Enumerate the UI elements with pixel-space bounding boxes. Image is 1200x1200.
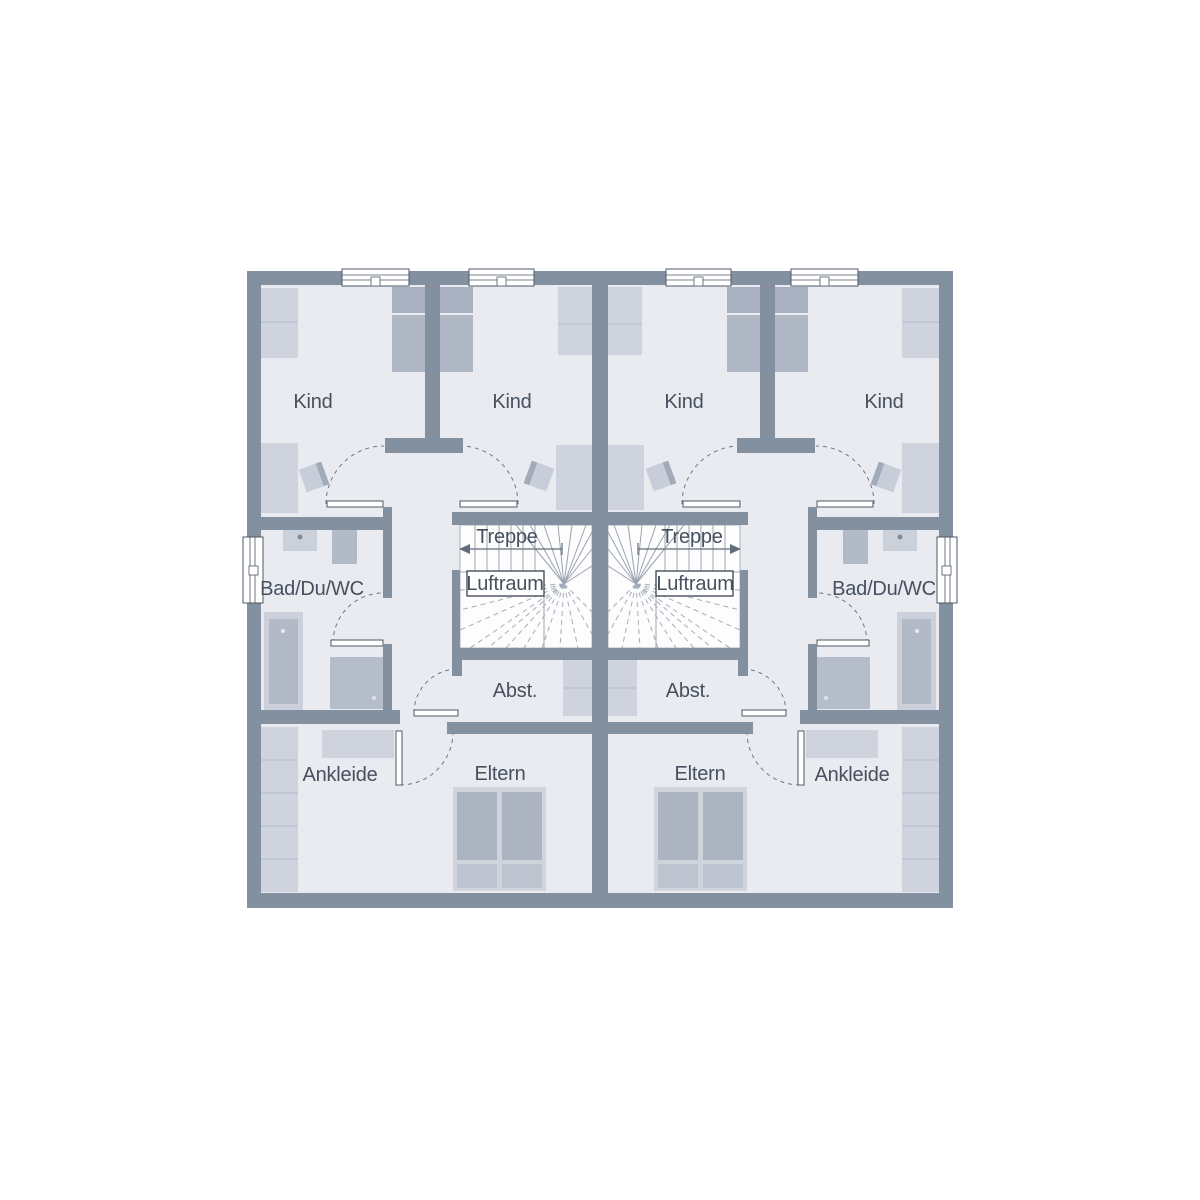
room-label-abst-right: Abst.: [666, 680, 711, 702]
room-label-eltern-right: Eltern: [674, 763, 725, 785]
floor-plan-canvas: Kind Kind Kind Kind Bad/Du/WC Bad/Du/WC …: [0, 0, 1200, 1200]
room-label-abst-left: Abst.: [493, 680, 538, 702]
room-label-kind-left-1: Kind: [293, 391, 332, 413]
room-label-eltern-left: Eltern: [474, 763, 525, 785]
room-label-kind-left-2: Kind: [492, 391, 531, 413]
room-label-kind-right-1: Kind: [664, 391, 703, 413]
room-label-treppe-left: Treppe: [476, 526, 538, 548]
room-label-kind-right-2: Kind: [864, 391, 903, 413]
party-wall: [592, 271, 608, 908]
room-label-ankleide-left: Ankleide: [302, 764, 377, 786]
room-label-luftraum-right: Luftraum: [656, 573, 733, 595]
room-label-bad-right: Bad/Du/WC: [832, 578, 936, 600]
room-label-treppe-right: Treppe: [661, 526, 723, 548]
floor-plan-page: Kind Kind Kind Kind Bad/Du/WC Bad/Du/WC …: [0, 0, 1200, 1200]
room-label-ankleide-right: Ankleide: [814, 764, 889, 786]
room-label-luftraum-left: Luftraum: [466, 573, 543, 595]
room-label-bad-left: Bad/Du/WC: [260, 578, 364, 600]
